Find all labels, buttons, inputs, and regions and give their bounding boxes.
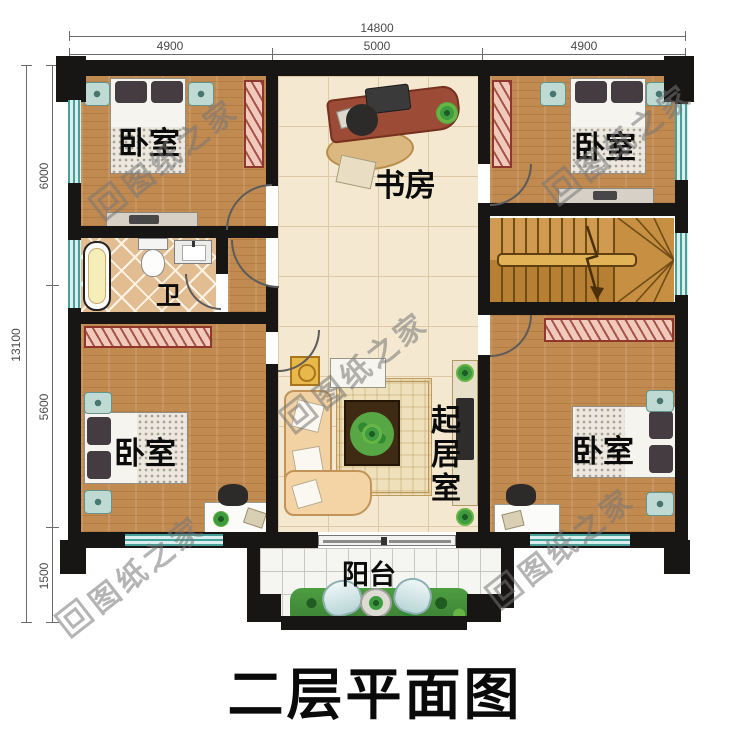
nightstand [188, 82, 214, 106]
balcony-sliding-door [318, 535, 456, 546]
nightstand [84, 82, 110, 106]
dim-top-seg-3: 4900 [534, 39, 634, 53]
bathtub [83, 241, 111, 311]
balcony-table [360, 588, 392, 618]
plant [456, 364, 474, 382]
nightstand [540, 82, 566, 106]
wardrobe [84, 326, 212, 348]
wall-bath-v [216, 238, 228, 274]
balcony-post-right [467, 594, 501, 622]
corner-post [664, 540, 690, 574]
bench [330, 358, 386, 388]
wall-int-v5 [478, 216, 490, 302]
balcony-wall-right [501, 548, 514, 608]
dim-left-seg-3: 1500 [37, 536, 51, 616]
corner-post [60, 540, 86, 574]
page-title: 二层平面图 [60, 650, 690, 731]
desk-chair [506, 484, 536, 506]
label-bedroom-top-left: 卧室 [118, 118, 180, 163]
plant [456, 508, 474, 526]
window-right-bedroom [675, 104, 688, 180]
wall-int-h4 [478, 302, 688, 315]
plant [436, 102, 458, 124]
wall-int-v2 [266, 286, 278, 312]
nightstand [646, 390, 674, 412]
window-left-bath [68, 240, 81, 308]
label-bedroom-bottom-right: 卧室 [572, 426, 634, 471]
plant-coffee-table [350, 412, 394, 456]
label-bedroom-top-right: 卧室 [574, 122, 636, 167]
label-study: 书房 [374, 160, 436, 205]
wall-int-v3a [266, 324, 278, 332]
dresser [558, 188, 654, 204]
wardrobe [544, 318, 674, 342]
window-bottom-right [530, 534, 630, 546]
dim-top-seg-2: 5000 [327, 39, 427, 53]
dim-left-seg-1: 6000 [37, 136, 51, 216]
sink [174, 240, 212, 264]
wall-int-v3b [266, 364, 278, 532]
dim-top-seg-1: 4900 [120, 39, 220, 53]
floor-plan-canvas: 14800 4900 5000 4900 13100 6000 5600 150… [0, 0, 750, 733]
study-chair [346, 104, 378, 136]
dim-top-total: 14800 [307, 21, 447, 35]
corner-post [664, 56, 694, 102]
label-bedroom-bottom-left: 卧室 [114, 428, 176, 473]
wardrobe [244, 80, 264, 168]
corner-post [56, 56, 86, 102]
balcony-wall-bottom [281, 616, 467, 630]
wall-int-v1 [266, 76, 278, 186]
window-right-stairs [675, 233, 688, 295]
dim-left-total: 13100 [9, 305, 23, 385]
wall-int-v6 [478, 355, 490, 532]
toilet-bowl [141, 249, 165, 277]
wall-int-v4 [478, 76, 490, 164]
desk-chair [218, 484, 248, 506]
wall-top [68, 60, 688, 76]
label-bathroom: 卫 [156, 276, 181, 312]
watermark-logo-icon [53, 597, 95, 639]
dim-left-seg-2: 5600 [37, 367, 51, 447]
label-living-room: 起居室 [420, 404, 464, 506]
label-balcony: 阳台 [342, 553, 396, 592]
nightstand [84, 392, 112, 414]
sofa-chaise [284, 470, 372, 516]
wall-int-h3 [478, 203, 688, 216]
nightstand [84, 490, 112, 514]
wardrobe [492, 80, 512, 168]
balcony-post-left [247, 594, 281, 622]
window-bottom-left [125, 534, 223, 546]
window-left-bedroom [68, 100, 81, 183]
staircase [490, 218, 674, 302]
nightstand [646, 492, 674, 516]
wall-int-h2 [80, 312, 278, 324]
